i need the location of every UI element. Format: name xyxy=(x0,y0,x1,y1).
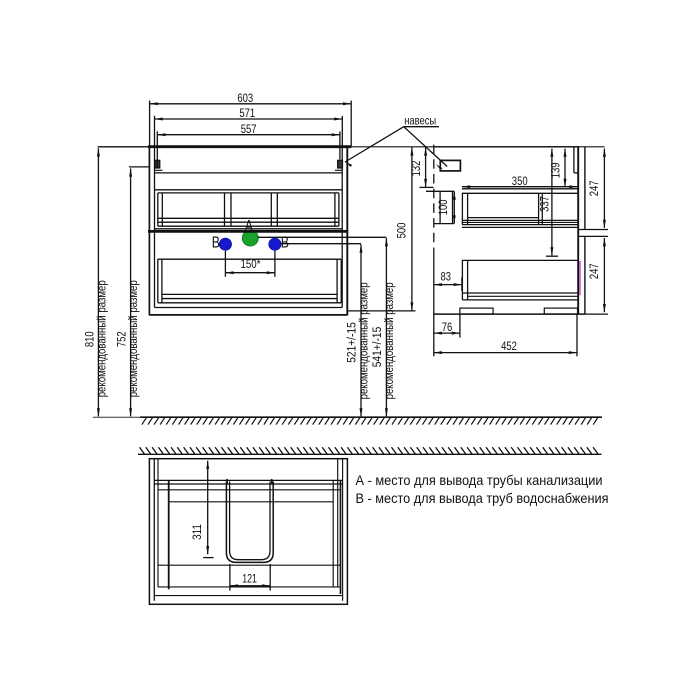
svg-text:B: B xyxy=(212,234,220,251)
svg-text:83: 83 xyxy=(441,271,452,283)
svg-text:571: 571 xyxy=(239,108,255,120)
svg-text:521+/-15: 521+/-15 xyxy=(346,322,358,363)
svg-text:541+/-15: 541+/-15 xyxy=(372,327,384,368)
svg-text:139: 139 xyxy=(551,162,563,178)
svg-text:452: 452 xyxy=(501,341,517,353)
svg-text:100: 100 xyxy=(438,200,450,216)
svg-text:рекомендованный размер: рекомендованный размер xyxy=(384,282,396,399)
svg-text:311: 311 xyxy=(192,524,204,540)
svg-text:150*: 150* xyxy=(241,259,261,271)
svg-text:350: 350 xyxy=(512,176,528,188)
svg-text:А - место для вывода трубы кан: А - место для вывода трубы канализации xyxy=(356,472,603,488)
svg-text:500: 500 xyxy=(396,223,408,239)
svg-text:В - место для вывода труб водо: В - место для вывода труб водоснабжения xyxy=(356,490,609,506)
svg-text:навесы: навесы xyxy=(404,116,436,128)
svg-text:337: 337 xyxy=(540,196,552,212)
svg-text:603: 603 xyxy=(237,93,253,105)
svg-text:B: B xyxy=(281,235,289,252)
svg-text:557: 557 xyxy=(241,124,257,136)
svg-text:810: 810 xyxy=(85,331,97,347)
svg-text:132: 132 xyxy=(411,161,423,177)
svg-text:752: 752 xyxy=(117,331,129,347)
svg-text:247: 247 xyxy=(589,180,601,196)
svg-text:A: A xyxy=(245,218,253,235)
svg-text:рекомендованный размер: рекомендованный размер xyxy=(358,282,370,399)
svg-text:247: 247 xyxy=(589,263,601,279)
svg-text:рекомендованный размер: рекомендованный размер xyxy=(97,280,109,397)
svg-text:76: 76 xyxy=(442,322,453,334)
svg-text:рекомендованный размер: рекомендованный размер xyxy=(128,280,140,397)
svg-text:121: 121 xyxy=(242,573,257,585)
